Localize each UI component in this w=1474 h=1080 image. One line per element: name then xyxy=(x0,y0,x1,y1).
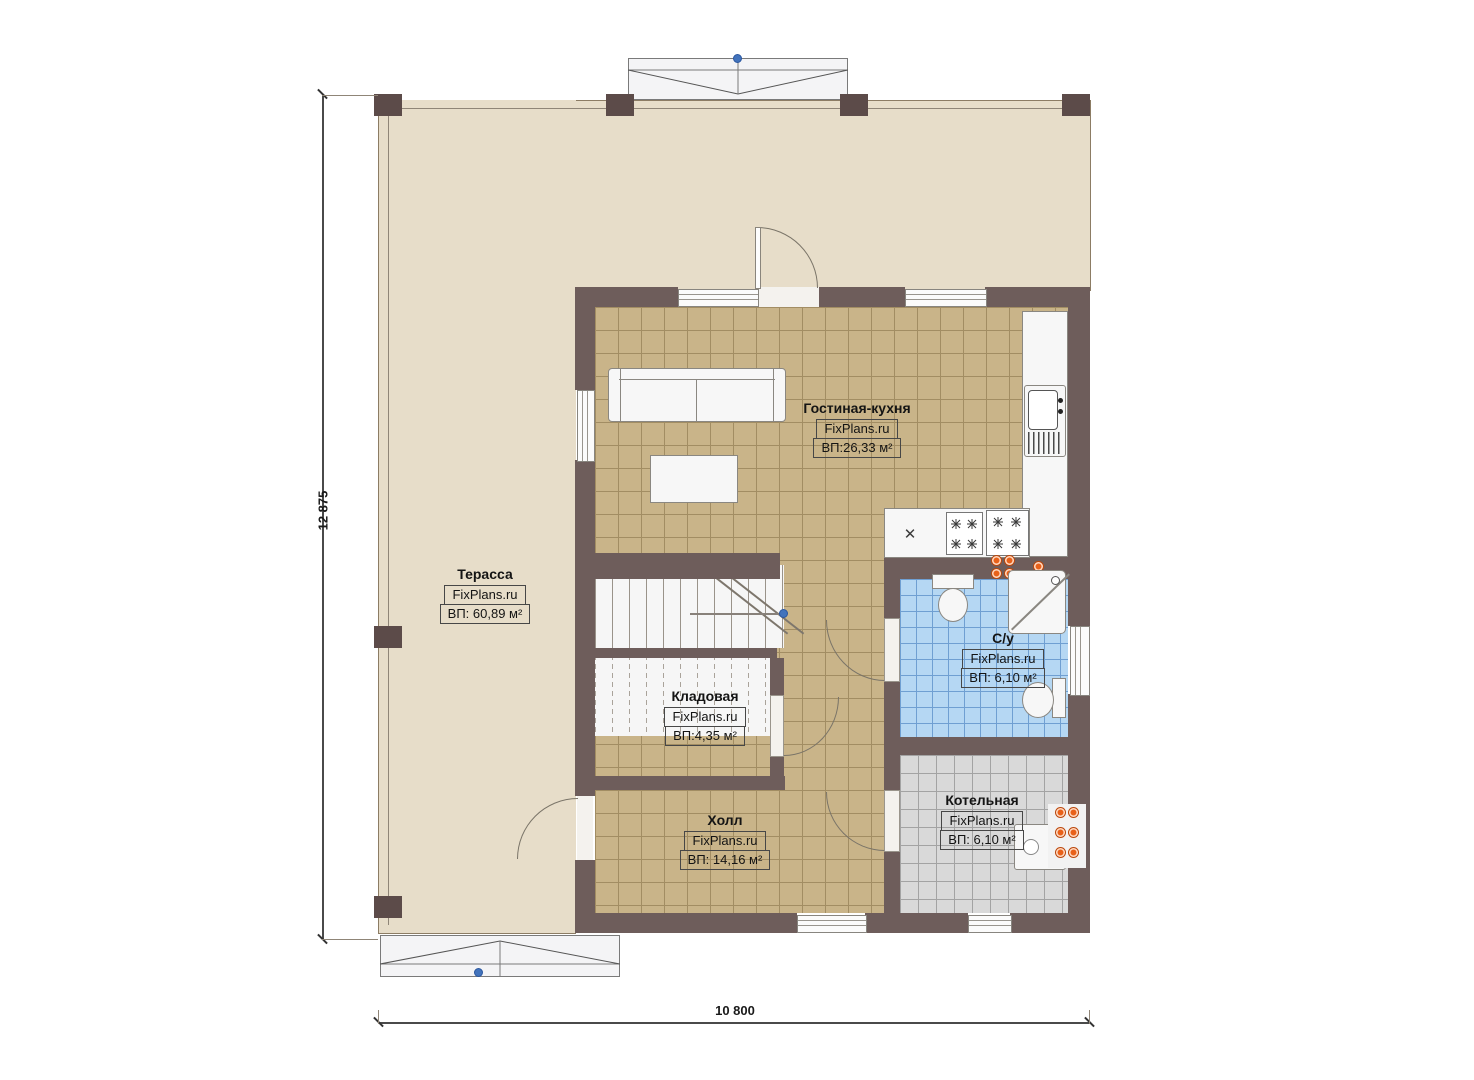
main-entry-door-leaf xyxy=(755,227,761,289)
room-brand: FixPlans.ru xyxy=(941,811,1022,831)
sink-drainboard-hatch xyxy=(1028,432,1062,454)
dimension-label-width: 10 800 xyxy=(695,1003,775,1018)
wall-hall-east-3 xyxy=(884,852,900,913)
sofa-arm-left xyxy=(609,369,621,421)
radiator-dot xyxy=(992,569,1001,578)
floor-plan: ✕ Терасса FixPlans.ru xyxy=(0,0,1474,1080)
room-area: ВП: 6,10 м² xyxy=(940,830,1023,850)
room-brand: FixPlans.ru xyxy=(962,649,1043,669)
wall-bottom-1 xyxy=(575,913,797,933)
terrace-rail-left xyxy=(388,108,389,925)
radiator-dot xyxy=(1069,828,1078,837)
wall-stairs-mid xyxy=(595,648,777,658)
room-label-terrace: Терасса FixPlans.ru ВП: 60,89 м² xyxy=(425,566,545,624)
terrace-door-opening xyxy=(577,796,593,860)
stairs-marker xyxy=(779,609,788,618)
column-top-mid-2 xyxy=(840,94,868,116)
room-area: ВП:26,33 м² xyxy=(813,438,900,458)
radiator-dot xyxy=(1005,556,1014,565)
entry-marker-top xyxy=(733,54,742,63)
column-top-left xyxy=(374,94,402,116)
column-left-bottom xyxy=(374,896,402,918)
main-door-opening xyxy=(757,287,819,307)
radiator-boiler-3 xyxy=(1056,848,1078,857)
sofa-seat-split xyxy=(696,379,697,421)
wall-left-3 xyxy=(575,860,595,933)
room-brand: FixPlans.ru xyxy=(664,707,745,727)
radiator-dot xyxy=(1056,808,1065,817)
shower-head-dot xyxy=(1051,576,1060,585)
bath-door-leaf xyxy=(884,618,900,682)
window-right-bath xyxy=(1070,626,1090,696)
room-brand: FixPlans.ru xyxy=(816,419,897,439)
dimension-line-horizontal xyxy=(378,1022,1090,1024)
radiator-boiler-2 xyxy=(1056,828,1078,837)
entry-steps-bottom xyxy=(380,935,620,977)
wall-left-2 xyxy=(575,460,595,796)
entry-steps-top xyxy=(628,58,848,100)
shower-diagonal xyxy=(1011,573,1070,630)
radiator-dot xyxy=(1069,808,1078,817)
wall-storage-east-1 xyxy=(770,658,784,695)
room-area: ВП: 6,10 м² xyxy=(961,668,1044,688)
column-top-mid-1 xyxy=(606,94,634,116)
radiator-dot xyxy=(992,556,1001,565)
boiler-door-leaf xyxy=(884,790,900,852)
coffee-table xyxy=(650,455,738,503)
room-label-bath: С/у FixPlans.ru ВП: 6,10 м² xyxy=(946,630,1060,688)
column-top-right xyxy=(1062,94,1090,116)
dim-witness-right xyxy=(1089,1010,1090,1024)
room-area: ВП: 60,89 м² xyxy=(440,604,531,624)
dim-witness-top xyxy=(322,95,378,96)
sofa xyxy=(608,368,786,422)
room-label-living: Гостиная-кухня FixPlans.ru ВП:26,33 м² xyxy=(790,400,924,458)
window-bottom-boiler xyxy=(968,915,1012,933)
dim-witness-bottom xyxy=(322,939,378,940)
room-label-hall: Холл FixPlans.ru ВП: 14,16 м² xyxy=(663,812,787,870)
dim-witness-left xyxy=(378,1010,379,1024)
terrace-rail-top xyxy=(388,108,1082,109)
wall-storage-east-2 xyxy=(770,757,784,776)
dimension-label-height: 12 875 xyxy=(316,476,331,546)
wall-right-1 xyxy=(1068,287,1090,626)
wall-living-south xyxy=(595,553,780,579)
room-label-storage: Кладовая FixPlans.ru ВП:4,35 м² xyxy=(643,688,767,746)
room-area: ВП: 14,16 м² xyxy=(680,850,771,870)
sofa-back xyxy=(619,369,775,380)
radiator-dot xyxy=(1056,828,1065,837)
stove-burners-icon xyxy=(946,510,1030,556)
radiator-dot xyxy=(1056,848,1065,857)
room-brand: FixPlans.ru xyxy=(684,831,765,851)
toilet-top-bowl xyxy=(938,588,968,622)
sink-drain-dot xyxy=(1058,398,1063,403)
room-name: Кладовая xyxy=(671,688,738,705)
window-left-living xyxy=(577,390,595,462)
storage-door-leaf xyxy=(770,695,784,757)
steps-bottom-graphic xyxy=(380,935,620,977)
shower-cabin xyxy=(1008,570,1066,634)
wall-left-1 xyxy=(575,287,595,390)
room-brand: FixPlans.ru xyxy=(444,585,525,605)
room-name: Терасса xyxy=(457,566,513,583)
wall-bottom-2 xyxy=(865,913,968,933)
column-left-mid xyxy=(374,626,402,648)
sofa-arm-right xyxy=(773,369,785,421)
stairs-run-line xyxy=(690,613,782,615)
room-name: С/у xyxy=(992,630,1014,647)
radiator-dot xyxy=(1069,848,1078,857)
wall-bath-south xyxy=(900,737,1068,755)
room-name: Холл xyxy=(707,812,742,829)
appliance-x-icon: ✕ xyxy=(888,512,932,556)
toilet-top-tank xyxy=(932,574,974,589)
stove-graphic xyxy=(946,510,1030,556)
entry-marker-bottom xyxy=(474,968,483,977)
window-top-kitchen xyxy=(905,289,987,307)
sink-basin xyxy=(1028,390,1058,430)
wall-storage-south xyxy=(575,776,785,790)
room-name: Гостиная-кухня xyxy=(803,400,910,417)
kitchen-sink-unit xyxy=(1024,385,1066,457)
wall-top-2 xyxy=(819,287,905,307)
sink-faucet-dot xyxy=(1058,409,1063,414)
room-name: Котельная xyxy=(945,792,1018,809)
window-top-living xyxy=(678,289,759,307)
room-area: ВП:4,35 м² xyxy=(665,726,745,746)
window-bottom-hall xyxy=(797,915,867,933)
radiator-boiler-1 xyxy=(1056,808,1078,817)
room-label-boiler: Котельная FixPlans.ru ВП: 6,10 м² xyxy=(921,792,1043,850)
wall-hall-east-2 xyxy=(884,682,900,790)
wall-hall-east-1 xyxy=(884,579,900,618)
steps-top-graphic xyxy=(628,58,848,100)
